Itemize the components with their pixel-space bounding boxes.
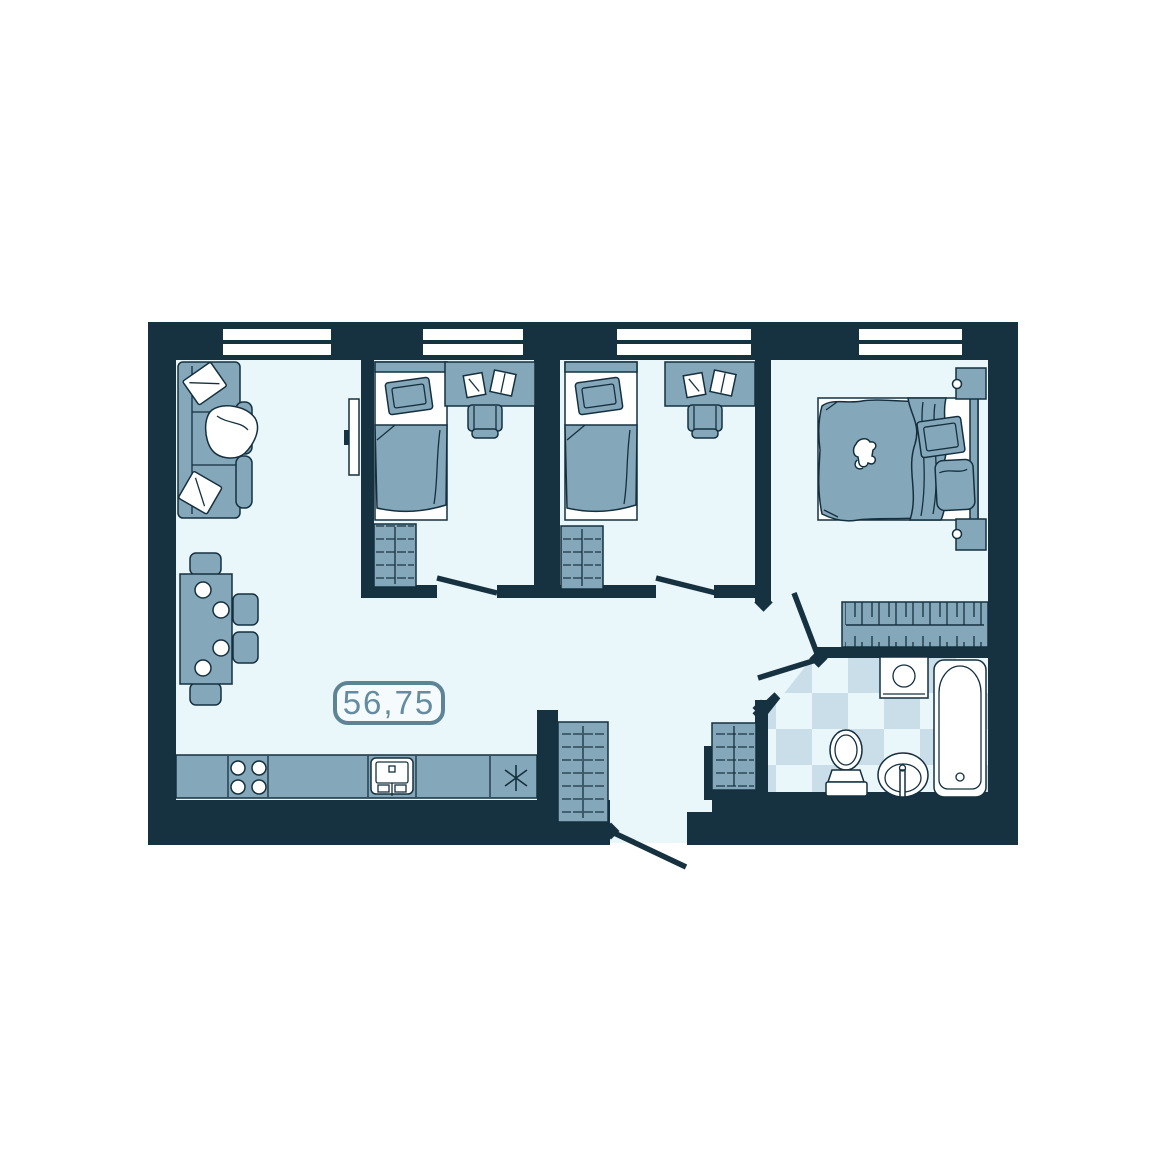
bedroom2-bed — [565, 362, 637, 520]
bedroom1-bed — [375, 362, 447, 520]
washing-machine — [880, 657, 928, 698]
wall-entry-stub — [537, 710, 558, 845]
nightstand-top — [953, 368, 987, 399]
dining-chair-right2 — [233, 632, 258, 663]
floor-plan-drawing — [0, 0, 1166, 1166]
wall-left — [148, 322, 176, 845]
nightstand-bottom — [953, 519, 987, 550]
kitchen-sink — [371, 758, 413, 796]
cat-on-bed — [854, 439, 876, 469]
plate — [213, 640, 229, 656]
dining-chair-right1 — [233, 594, 258, 625]
bedroom2-wardrobe — [561, 526, 603, 589]
bathtub — [934, 660, 986, 797]
dining-chair-top — [190, 553, 221, 575]
bedroom1-desk — [445, 362, 535, 406]
bedroom2-desk — [665, 362, 755, 406]
master-pillow-1 — [917, 416, 966, 458]
plate — [213, 602, 229, 618]
entry-closet-left — [558, 722, 608, 822]
wall-bedroom2-bottom-stub — [714, 585, 755, 598]
wall-bedroom1-bottom-stub — [497, 585, 534, 598]
entry-closet-right — [712, 723, 756, 790]
dining-chair-bottom — [190, 683, 221, 705]
bathroom-sink — [878, 753, 928, 797]
wall-under-closet-left — [558, 820, 608, 845]
plate — [195, 660, 211, 676]
vestibule-notch — [687, 800, 712, 812]
master-pillow-2 — [935, 459, 976, 511]
bedroom1-wardrobe — [374, 524, 416, 587]
area-label-text: 56,75 — [343, 684, 436, 722]
wall-bottom-right — [687, 812, 1018, 845]
wall-right — [988, 322, 1018, 845]
floor-plan-page: 56,75 — [0, 0, 1166, 1166]
area-label-badge: 56,75 — [333, 681, 445, 725]
bedroom2-chair — [688, 405, 722, 438]
wall-between-bedrooms — [534, 360, 560, 598]
master-bed — [818, 398, 978, 521]
kitchen-counter — [176, 755, 537, 798]
plate — [195, 582, 211, 598]
wall-bedroom1-left — [361, 360, 374, 598]
wall-master-west — [755, 360, 771, 602]
bedroom1-chair — [468, 405, 502, 438]
wardrobe-rack — [842, 602, 988, 647]
